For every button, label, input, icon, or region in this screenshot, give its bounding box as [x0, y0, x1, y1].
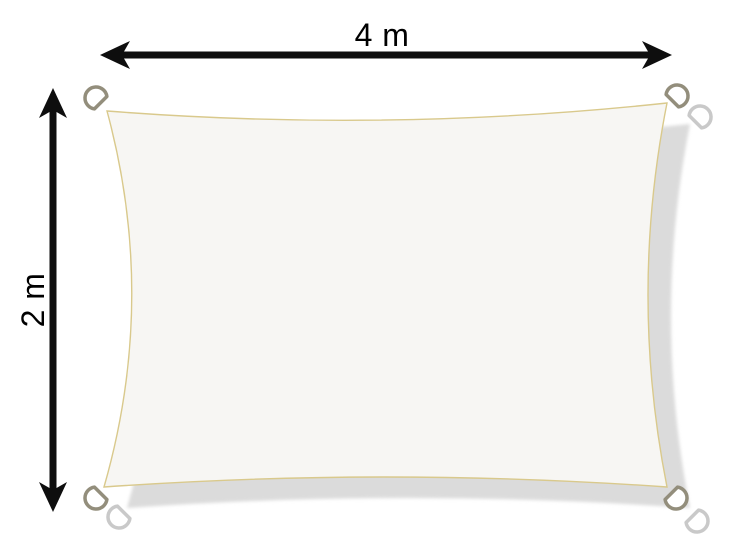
- sail-fabric: [104, 103, 667, 487]
- d-ring-shadow-bottom-left-icon: [103, 505, 131, 533]
- d-ring-top-right-icon: [665, 80, 693, 108]
- width-dimension-label: 4 m: [355, 17, 410, 53]
- height-dimension-label: 2 m: [15, 273, 51, 328]
- d-ring-shadow-top-right-icon: [688, 101, 716, 129]
- width-dimension: 4 m: [100, 17, 672, 69]
- height-dimension: 2 m: [15, 88, 67, 512]
- d-ring-shadow-bottom-right-icon: [685, 509, 713, 537]
- d-ring-bottom-left-icon: [80, 486, 108, 514]
- shade-sail-dimension-diagram: 4 m 2 m: [0, 0, 741, 560]
- product-image: 4 m 2 m: [0, 0, 741, 560]
- d-ring-top-left-icon: [80, 82, 108, 110]
